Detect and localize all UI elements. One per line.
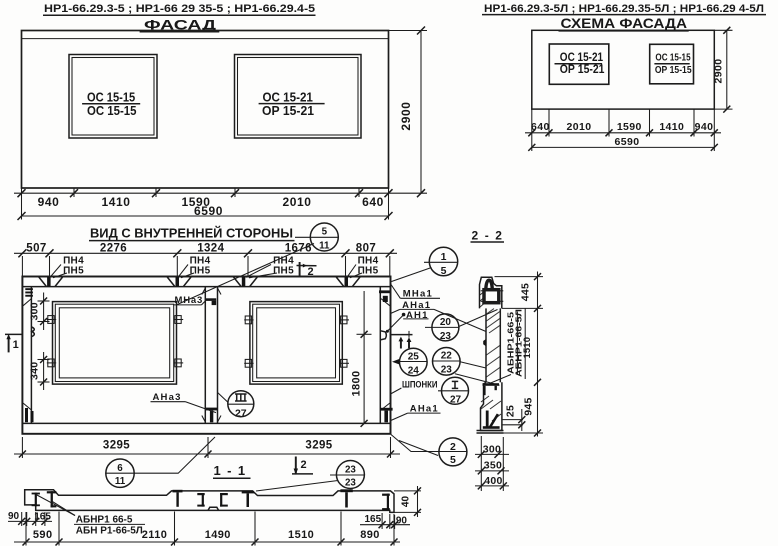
svg-text:ПН5: ПН5 [358,265,379,276]
svg-text:5: 5 [450,454,456,466]
svg-text:340: 340 [28,362,40,380]
svg-text:1410: 1410 [659,121,684,133]
svg-text:1: 1 [441,251,447,263]
svg-text:23: 23 [440,331,452,342]
svg-text:90: 90 [8,511,20,522]
svg-text:25: 25 [408,351,420,362]
svg-text:1: 1 [13,339,19,351]
svg-text:27: 27 [450,394,462,405]
svg-text:890: 890 [360,529,380,541]
svg-text:5: 5 [322,226,328,237]
svg-text:590: 590 [33,529,53,541]
svg-text:23: 23 [345,464,356,475]
svg-text:НР1-66.29.3-5Л ; НР1-66.29.35-: НР1-66.29.3-5Л ; НР1-66.29.35-5Л ; НР1-6… [484,3,764,15]
svg-text:807: 807 [356,243,376,255]
svg-text:ОР 15-21: ОР 15-21 [262,103,314,118]
svg-text:ОС 15-15: ОС 15-15 [655,51,690,63]
svg-text:АБНР1 66-5: АБНР1 66-5 [76,514,133,525]
svg-text:445: 445 [520,283,532,301]
svg-text:5: 5 [441,265,447,277]
svg-text:300: 300 [28,302,40,320]
svg-text:ПН5: ПН5 [273,265,294,276]
svg-text:2010: 2010 [282,195,311,209]
svg-text:2 - 2: 2 - 2 [472,229,504,243]
svg-text:27: 27 [235,407,247,419]
svg-text:40: 40 [401,496,412,508]
svg-text:ШПОНКИ: ШПОНКИ [402,380,438,391]
svg-text:1410: 1410 [101,195,130,209]
svg-text:АНа3: АНа3 [153,392,182,403]
svg-text:24: 24 [408,365,420,376]
svg-text:1490: 1490 [205,529,231,541]
svg-text:165: 165 [364,514,381,525]
svg-text:940: 940 [695,121,714,133]
svg-text:6: 6 [117,463,123,474]
svg-text:6590: 6590 [615,136,640,148]
svg-text:23: 23 [441,365,453,376]
svg-text:1510: 1510 [288,529,314,541]
svg-text:2900: 2900 [399,101,413,130]
svg-text:2010: 2010 [567,121,592,133]
svg-text:ОС 15-15: ОС 15-15 [87,103,137,118]
svg-text:507: 507 [26,243,46,255]
svg-text:25: 25 [504,405,516,417]
svg-text:1510: 1510 [521,337,532,359]
svg-text:2: 2 [450,441,456,453]
svg-text:2276: 2276 [100,243,127,255]
svg-text:2900: 2900 [713,59,725,84]
svg-text:400: 400 [484,475,502,487]
svg-text:3295: 3295 [305,440,332,452]
svg-text:1800: 1800 [350,370,362,396]
svg-text:АБН Р1-66-5Л: АБН Р1-66-5Л [76,526,143,537]
svg-text:11: 11 [115,476,126,487]
svg-text:ВИД С ВНУТРЕННЕЙ СТОРОНЫ: ВИД С ВНУТРЕННЕЙ СТОРОНЫ [90,226,293,241]
svg-text:ОР 15-15: ОР 15-15 [655,64,692,76]
svg-text:1590: 1590 [617,121,642,133]
svg-text:11: 11 [319,240,330,251]
svg-text:3295: 3295 [103,440,130,452]
svg-text:22: 22 [441,351,453,362]
svg-text:ОР 15-21: ОР 15-21 [560,64,605,76]
svg-text:23: 23 [345,478,356,489]
svg-text:ОС 15-21: ОС 15-21 [560,52,604,64]
svg-text:2110: 2110 [142,529,167,541]
svg-text:НР1-66.29.3-5 ; НР1-66 29 35-5: НР1-66.29.3-5 ; НР1-66 29 35-5 ; НР1-66.… [44,3,315,15]
svg-text:1676: 1676 [285,243,312,255]
svg-text:СХЕМА ФАСАДА: СХЕМА ФАСАДА [561,16,688,31]
svg-text:1 - 1: 1 - 1 [214,463,247,478]
svg-text:945: 945 [523,397,535,415]
svg-text:ПН5: ПН5 [63,265,84,276]
svg-text:940: 940 [38,195,60,209]
svg-text:640: 640 [362,195,384,209]
svg-text:ПН5: ПН5 [190,265,211,276]
svg-text:2: 2 [301,459,307,471]
svg-text:1324: 1324 [197,243,224,255]
svg-text:350: 350 [484,460,502,472]
svg-text:20: 20 [440,317,452,328]
